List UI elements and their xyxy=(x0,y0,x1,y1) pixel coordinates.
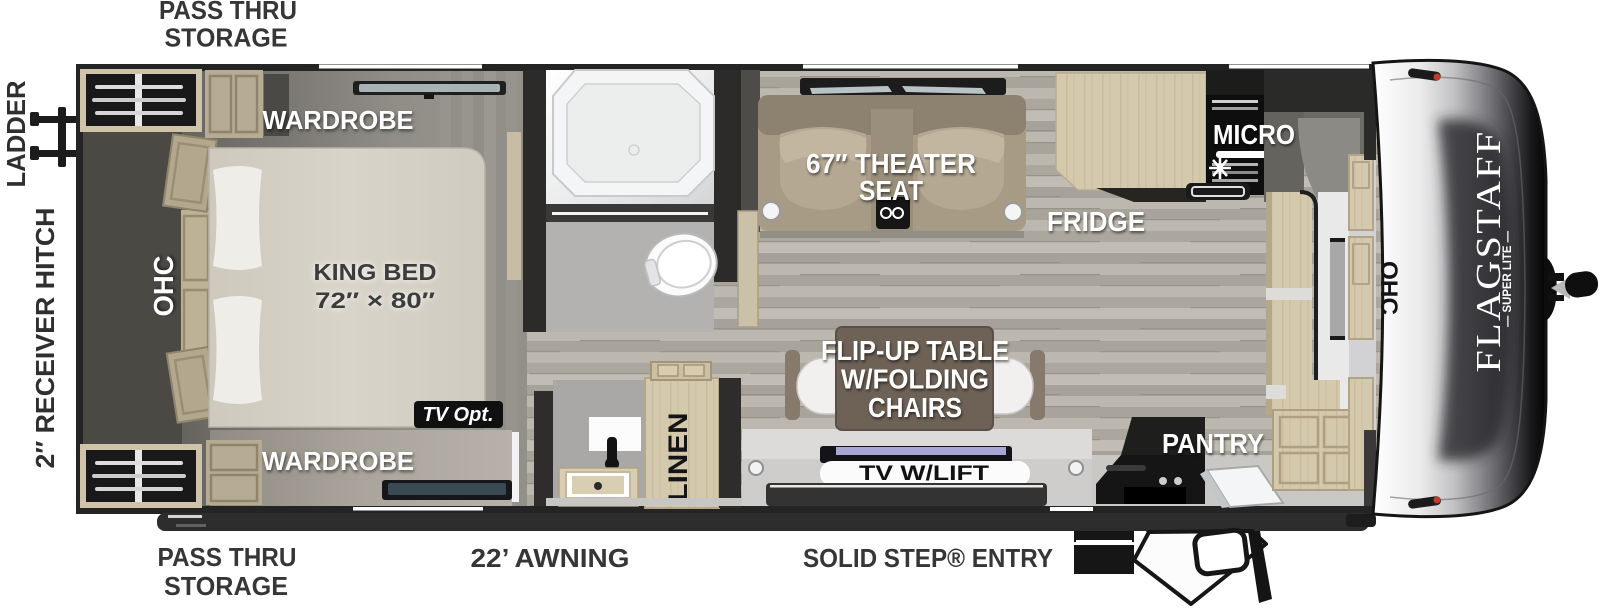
svg-text:FRIDGE: FRIDGE xyxy=(1047,206,1145,237)
svg-text:FLIP-UP TABLE: FLIP-UP TABLE xyxy=(821,335,1009,366)
svg-text:72″ × 80″: 72″ × 80″ xyxy=(315,288,436,313)
svg-text:WARDROBE: WARDROBE xyxy=(262,446,414,476)
svg-text:MICRO: MICRO xyxy=(1213,119,1295,150)
svg-text:OHC: OHC xyxy=(148,256,179,317)
svg-text:SOLID STEP® ENTRY: SOLID STEP® ENTRY xyxy=(803,543,1053,573)
svg-text:— SUPER LITE —: — SUPER LITE — xyxy=(1500,231,1514,327)
svg-text:LADDER: LADDER xyxy=(1,80,31,187)
svg-text:KING BED: KING BED xyxy=(314,259,437,285)
svg-text:22’ AWNING: 22’ AWNING xyxy=(471,543,630,573)
svg-text:PASS THRU: PASS THRU xyxy=(159,0,297,25)
svg-text:TV W/LIFT: TV W/LIFT xyxy=(859,462,989,485)
svg-text:SEAT: SEAT xyxy=(859,175,923,206)
svg-text:STORAGE: STORAGE xyxy=(165,23,288,53)
svg-text:STORAGE: STORAGE xyxy=(164,571,288,601)
svg-text:WARDROBE: WARDROBE xyxy=(263,105,414,135)
svg-text:PANTRY: PANTRY xyxy=(1162,428,1264,459)
svg-text:LINEN: LINEN xyxy=(663,413,693,502)
svg-text:W/FOLDING: W/FOLDING xyxy=(841,364,989,395)
svg-text:2″ RECEIVER HITCH: 2″ RECEIVER HITCH xyxy=(30,208,60,469)
svg-text:TV Opt.: TV Opt. xyxy=(422,404,493,426)
svg-text:CHAIRS: CHAIRS xyxy=(868,392,962,423)
svg-text:PASS THRU: PASS THRU xyxy=(158,542,297,572)
svg-text:OHC: OHC xyxy=(1375,261,1402,315)
